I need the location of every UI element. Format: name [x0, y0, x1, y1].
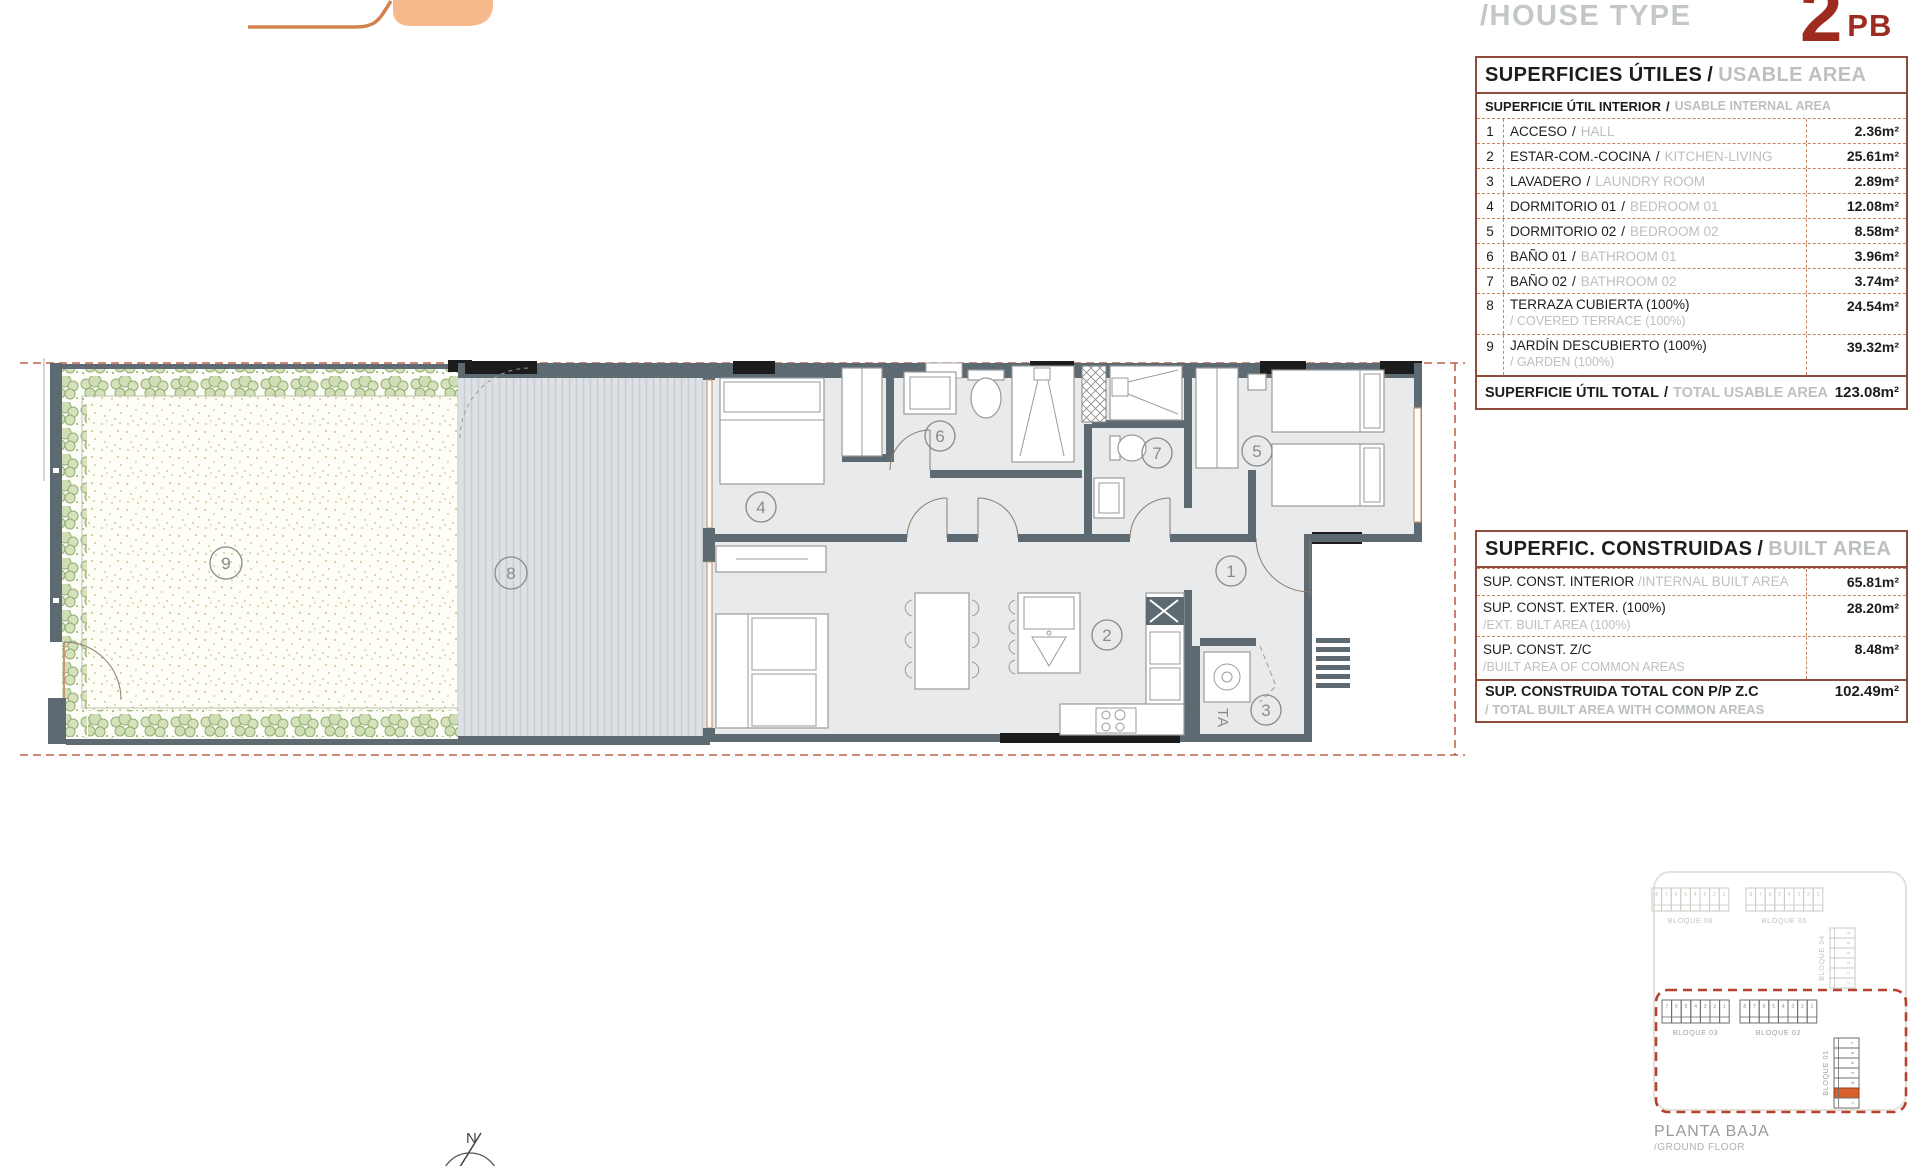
svg-text:6: 6: [935, 427, 944, 446]
svg-text:3: 3: [1791, 1004, 1794, 1010]
table-row: 5 DORMITORIO 02/BEDROOM 02 8.58m²: [1477, 218, 1906, 243]
usable-total-row: SUPERFICIE ÚTIL TOTAL/TOTAL USABLE AREA …: [1477, 375, 1906, 408]
svg-text:8: 8: [1655, 892, 1658, 898]
svg-text:4: 4: [1788, 892, 1791, 898]
svg-text:6: 6: [1675, 892, 1678, 898]
svg-text:BLOQUE 04: BLOQUE 04: [1817, 935, 1826, 980]
svg-text:1: 1: [1817, 892, 1820, 898]
interior-zone: TA: [703, 361, 1422, 743]
svg-text:3: 3: [1846, 961, 1851, 964]
table-row: 2 ESTAR-COM.-COCINA/KITCHEN-LIVING 25.61…: [1477, 143, 1906, 168]
svg-text:9: 9: [221, 554, 230, 573]
svg-text:1: 1: [1846, 981, 1851, 984]
svg-text:1: 1: [1723, 1004, 1726, 1010]
table-row: 9 JARDÍN DESCUBIERTO (100%)/ GARDEN (100…: [1477, 334, 1906, 375]
svg-text:6: 6: [1769, 892, 1772, 898]
svg-text:2: 2: [1846, 971, 1851, 974]
svg-text:5: 5: [1684, 892, 1687, 898]
svg-text:4: 4: [1782, 1004, 1785, 1010]
svg-text:1: 1: [1226, 562, 1235, 581]
brand-logo-icon: [205, 0, 505, 34]
svg-text:BLOQUE 06: BLOQUE 06: [1668, 916, 1713, 925]
north-compass-icon: N: [420, 1128, 540, 1166]
svg-text:2: 2: [1807, 892, 1810, 898]
svg-text:6: 6: [1675, 1004, 1678, 1010]
built-table-title: SUPERFIC. CONSTRUIDAS/BUILT AREA: [1477, 532, 1906, 568]
terrace-zone: [458, 361, 710, 745]
house-type-label: /HOUSE TYPE: [1480, 0, 1692, 33]
unit-number: 2: [1800, 0, 1842, 52]
stairs: [1316, 638, 1350, 688]
svg-text:8: 8: [506, 564, 515, 583]
garden-zone: [48, 360, 472, 745]
svg-text:2: 2: [1801, 1004, 1804, 1010]
svg-text:BLOQUE 03: BLOQUE 03: [1673, 1028, 1718, 1037]
compass-n-label: N: [466, 1130, 477, 1147]
svg-text:5: 5: [1850, 1061, 1855, 1064]
svg-text:6: 6: [1846, 931, 1851, 934]
svg-text:4: 4: [756, 498, 765, 517]
usable-table-title: SUPERFICIES ÚTILES/USABLE AREA: [1477, 58, 1906, 94]
svg-text:7: 7: [1665, 1004, 1668, 1010]
table-row: 1 ACCESO/HALL 2.36m²: [1477, 118, 1906, 143]
unit-suffix: PB: [1847, 8, 1892, 44]
table-row: SUP. CONST. EXTER. (100%)/EXT. BUILT ARE…: [1477, 595, 1906, 636]
site-plan-blocks: 87654321BLOQUE 0687654321BLOQUE 05654321…: [1652, 888, 1859, 1108]
svg-text:4: 4: [1694, 892, 1697, 898]
table-row: 4 DORMITORIO 01/BEDROOM 01 12.08m²: [1477, 193, 1906, 218]
svg-text:4: 4: [1846, 951, 1851, 954]
built-total-row: SUP. CONSTRUIDA TOTAL CON P/P Z.C/ TOTAL…: [1477, 679, 1906, 721]
svg-text:7: 7: [1850, 1041, 1855, 1044]
table-row: 6 BAÑO 01/BATHROOM 01 3.96m²: [1477, 243, 1906, 268]
svg-text:BLOQUE 02: BLOQUE 02: [1756, 1028, 1801, 1037]
svg-text:6: 6: [1850, 1051, 1855, 1054]
svg-text:5: 5: [1252, 442, 1261, 461]
svg-text:8: 8: [1743, 1004, 1746, 1010]
svg-text:5: 5: [1685, 1004, 1688, 1010]
laundry-ta-label: TA: [1214, 708, 1231, 728]
svg-text:2: 2: [1713, 892, 1716, 898]
svg-text:5: 5: [1778, 892, 1781, 898]
floor-plan: TA 9 8 4 6 7 5 1 2 3: [20, 350, 1465, 770]
table-row: SUP. CONST. Z/C/BUILT AREA OF COMMON ARE…: [1477, 636, 1906, 679]
svg-text:1: 1: [1850, 1101, 1855, 1104]
usable-table-subtitle: SUPERFICIE ÚTIL INTERIOR/USABLE INTERNAL…: [1477, 94, 1906, 118]
page: { "header": {"house_type_label": "/HOUSE…: [0, 0, 1920, 1166]
svg-text:BLOQUE 01: BLOQUE 01: [1821, 1050, 1830, 1095]
usable-area-table: SUPERFICIES ÚTILES/USABLE AREA SUPERFICI…: [1475, 56, 1908, 410]
svg-text:6: 6: [1763, 1004, 1766, 1010]
site-plan: 87654321BLOQUE 0687654321BLOQUE 05654321…: [1650, 866, 1920, 1166]
svg-text:4: 4: [1850, 1071, 1855, 1074]
svg-text:2: 2: [1102, 626, 1111, 645]
table-row: 8 TERRAZA CUBIERTA (100%)/ COVERED TERRA…: [1477, 293, 1906, 334]
svg-text:7: 7: [1753, 1004, 1756, 1010]
svg-text:3: 3: [1850, 1081, 1855, 1084]
site-plan-caption-en: /GROUND FLOOR: [1654, 1142, 1745, 1153]
svg-text:7: 7: [1665, 892, 1668, 898]
svg-text:8: 8: [1749, 892, 1752, 898]
svg-text:1: 1: [1811, 1004, 1814, 1010]
svg-text:3: 3: [1261, 701, 1270, 720]
site-plan-caption: PLANTA BAJA: [1654, 1123, 1770, 1140]
svg-text:BLOQUE 05: BLOQUE 05: [1762, 916, 1807, 925]
svg-text:1: 1: [1723, 892, 1726, 898]
table-row: 7 BAÑO 02/BATHROOM 02 3.74m²: [1477, 268, 1906, 293]
svg-text:4: 4: [1694, 1004, 1697, 1010]
built-area-table: SUPERFIC. CONSTRUIDAS/BUILT AREA SUP. CO…: [1475, 530, 1908, 723]
svg-text:3: 3: [1797, 892, 1800, 898]
svg-text:7: 7: [1152, 444, 1161, 463]
table-row: 3 LAVADERO/LAUNDRY ROOM 2.89m²: [1477, 168, 1906, 193]
unit-type-badge: 2 PB: [1800, 0, 1892, 52]
svg-text:5: 5: [1846, 941, 1851, 944]
svg-text:5: 5: [1772, 1004, 1775, 1010]
svg-text:3: 3: [1703, 892, 1706, 898]
svg-text:7: 7: [1759, 892, 1762, 898]
svg-text:2: 2: [1713, 1004, 1716, 1010]
table-row: SUP. CONST. INTERIOR /INTERNAL BUILT ARE…: [1477, 568, 1906, 595]
svg-text:3: 3: [1704, 1004, 1707, 1010]
